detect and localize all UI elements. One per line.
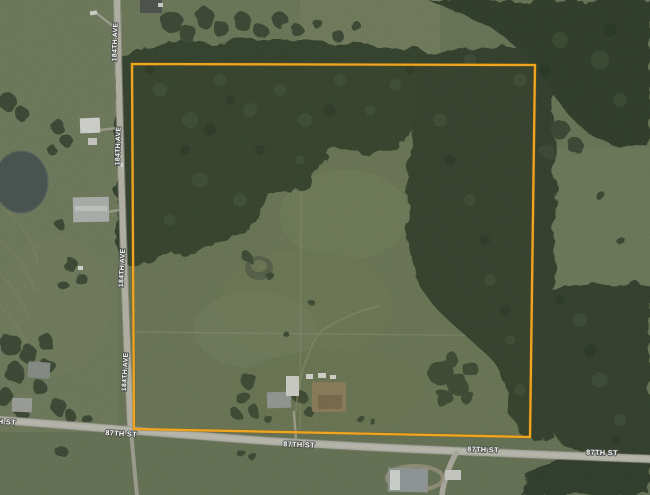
- road-label-87th-st: 87TH ST: [586, 448, 618, 458]
- parcel-boundary: [132, 64, 535, 437]
- road-label-87th-st: 87TH ST: [0, 416, 16, 427]
- road-label-87th-st: 87TH ST: [283, 439, 315, 449]
- road-label-184th-ave: 184TH AVE: [111, 22, 119, 61]
- road-label-184th-ave: 184TH AVE: [114, 126, 122, 165]
- map-imagery: 87TH ST 87TH ST 87TH ST 87TH ST 87TH ST …: [0, 0, 650, 495]
- road-label-87th-st: 87TH ST: [467, 444, 499, 454]
- satellite-map-canvas[interactable]: 87TH ST 87TH ST 87TH ST 87TH ST 87TH ST …: [0, 0, 650, 495]
